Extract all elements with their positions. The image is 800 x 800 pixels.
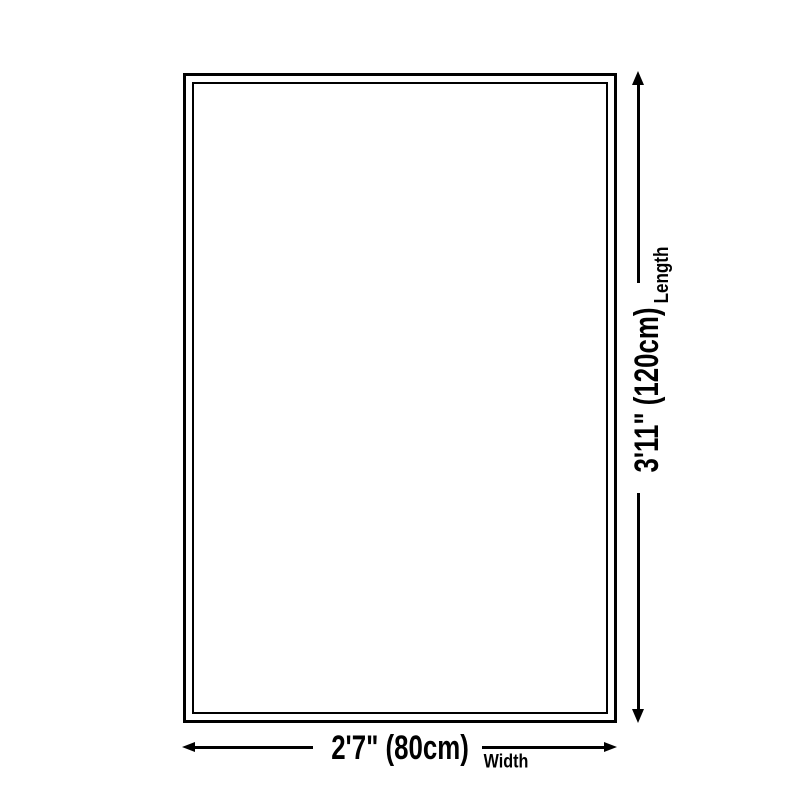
length-arrow-line-top bbox=[637, 83, 640, 283]
dimension-diagram: 3'11" (120cm) Length 2'7" (80cm) Width bbox=[0, 0, 800, 800]
length-value: 3'11" (120cm) bbox=[630, 308, 664, 473]
width-label: Width bbox=[484, 753, 529, 772]
arrow-down-icon bbox=[632, 709, 644, 723]
length-label: Length bbox=[652, 247, 672, 304]
product-outline-outer bbox=[183, 73, 617, 723]
product-outline-inner bbox=[192, 82, 608, 714]
width-arrow-line-left bbox=[194, 746, 313, 749]
arrow-right-icon bbox=[604, 742, 617, 752]
width-arrow-line-right bbox=[482, 746, 604, 749]
length-arrow-line-bottom bbox=[637, 493, 640, 712]
width-value: 2'7" (80cm) bbox=[331, 731, 469, 765]
